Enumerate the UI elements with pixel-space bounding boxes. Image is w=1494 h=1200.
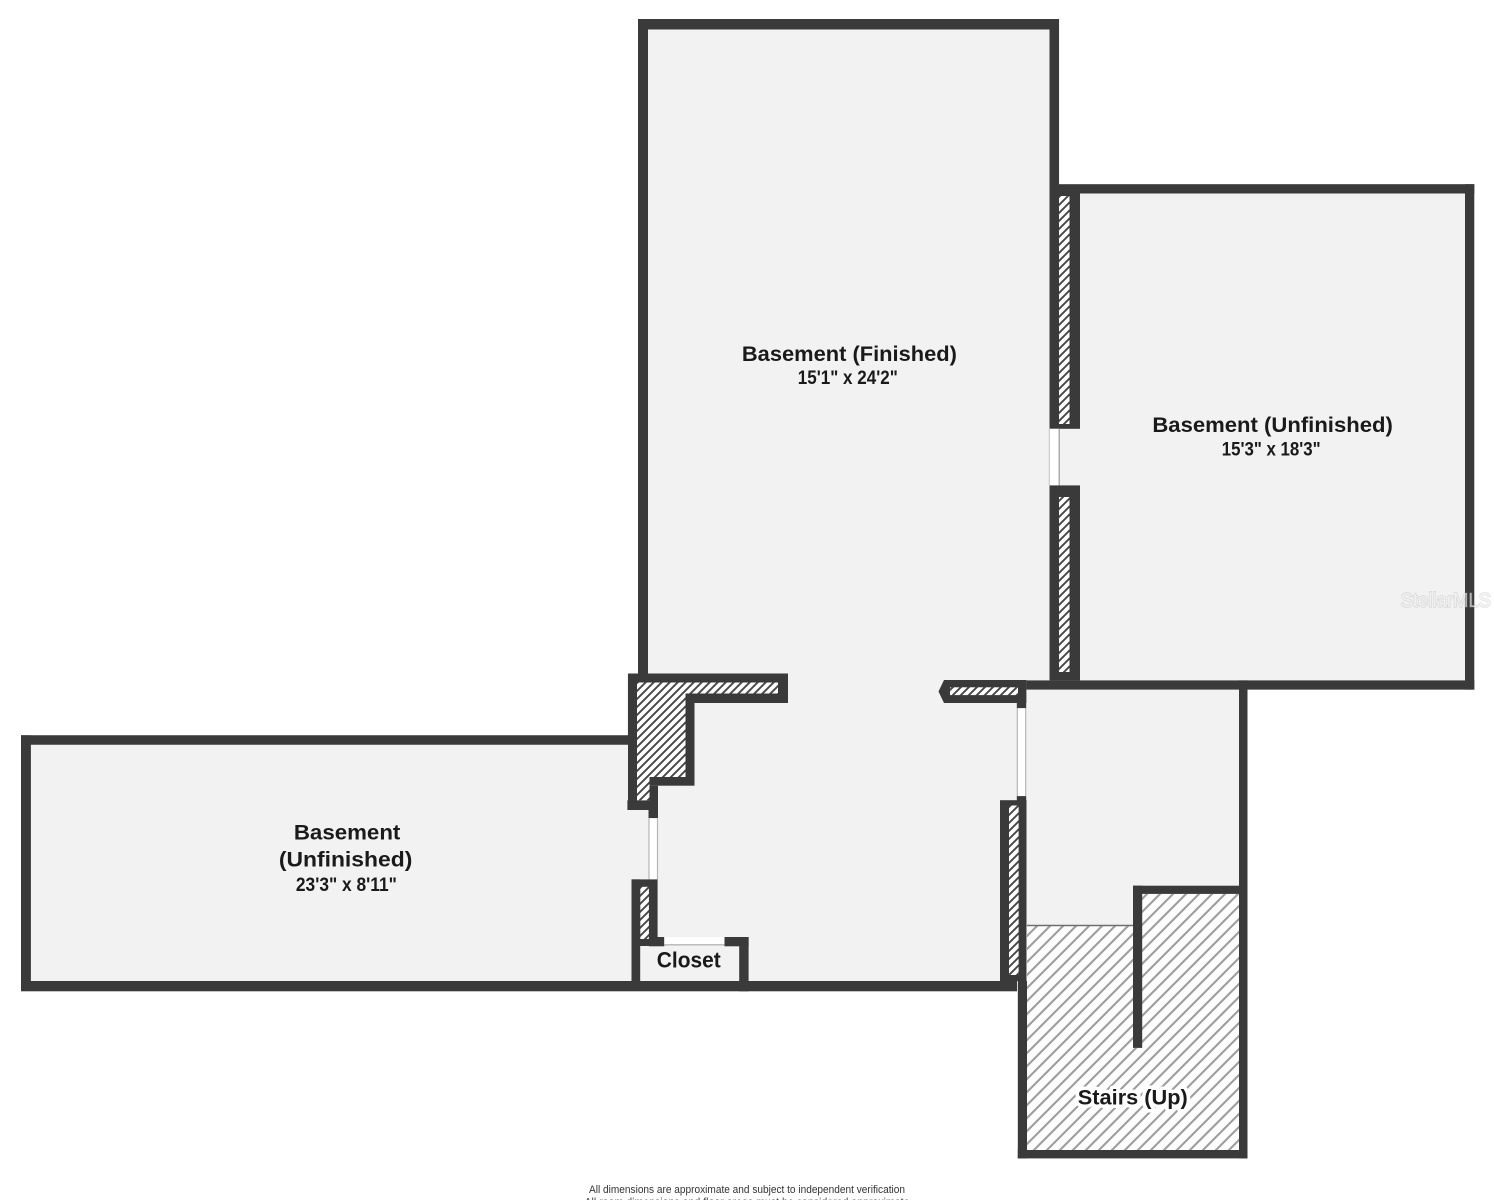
svg-text:StellarMLS: StellarMLS xyxy=(1401,589,1491,612)
svg-text:Basement (Finished): Basement (Finished) xyxy=(742,342,957,366)
svg-text:23'3" x 8'11": 23'3" x 8'11" xyxy=(296,875,397,896)
svg-text:Basement: Basement xyxy=(294,821,401,845)
svg-text:Closet: Closet xyxy=(657,948,722,973)
svg-text:15'1" x 24'2": 15'1" x 24'2" xyxy=(798,368,898,389)
svg-text:15'3" x 18'3": 15'3" x 18'3" xyxy=(1222,440,1321,461)
svg-text:All dimensions are approximate: All dimensions are approximate and subje… xyxy=(589,1184,905,1196)
svg-text:(Unfinished): (Unfinished) xyxy=(279,848,413,872)
svg-text:Stairs (Up): Stairs (Up) xyxy=(1078,1087,1188,1110)
svg-text:Basement (Unfinished): Basement (Unfinished) xyxy=(1152,413,1393,437)
svg-text:All room dimensions and floor: All room dimensions and floor areas must… xyxy=(585,1197,910,1200)
